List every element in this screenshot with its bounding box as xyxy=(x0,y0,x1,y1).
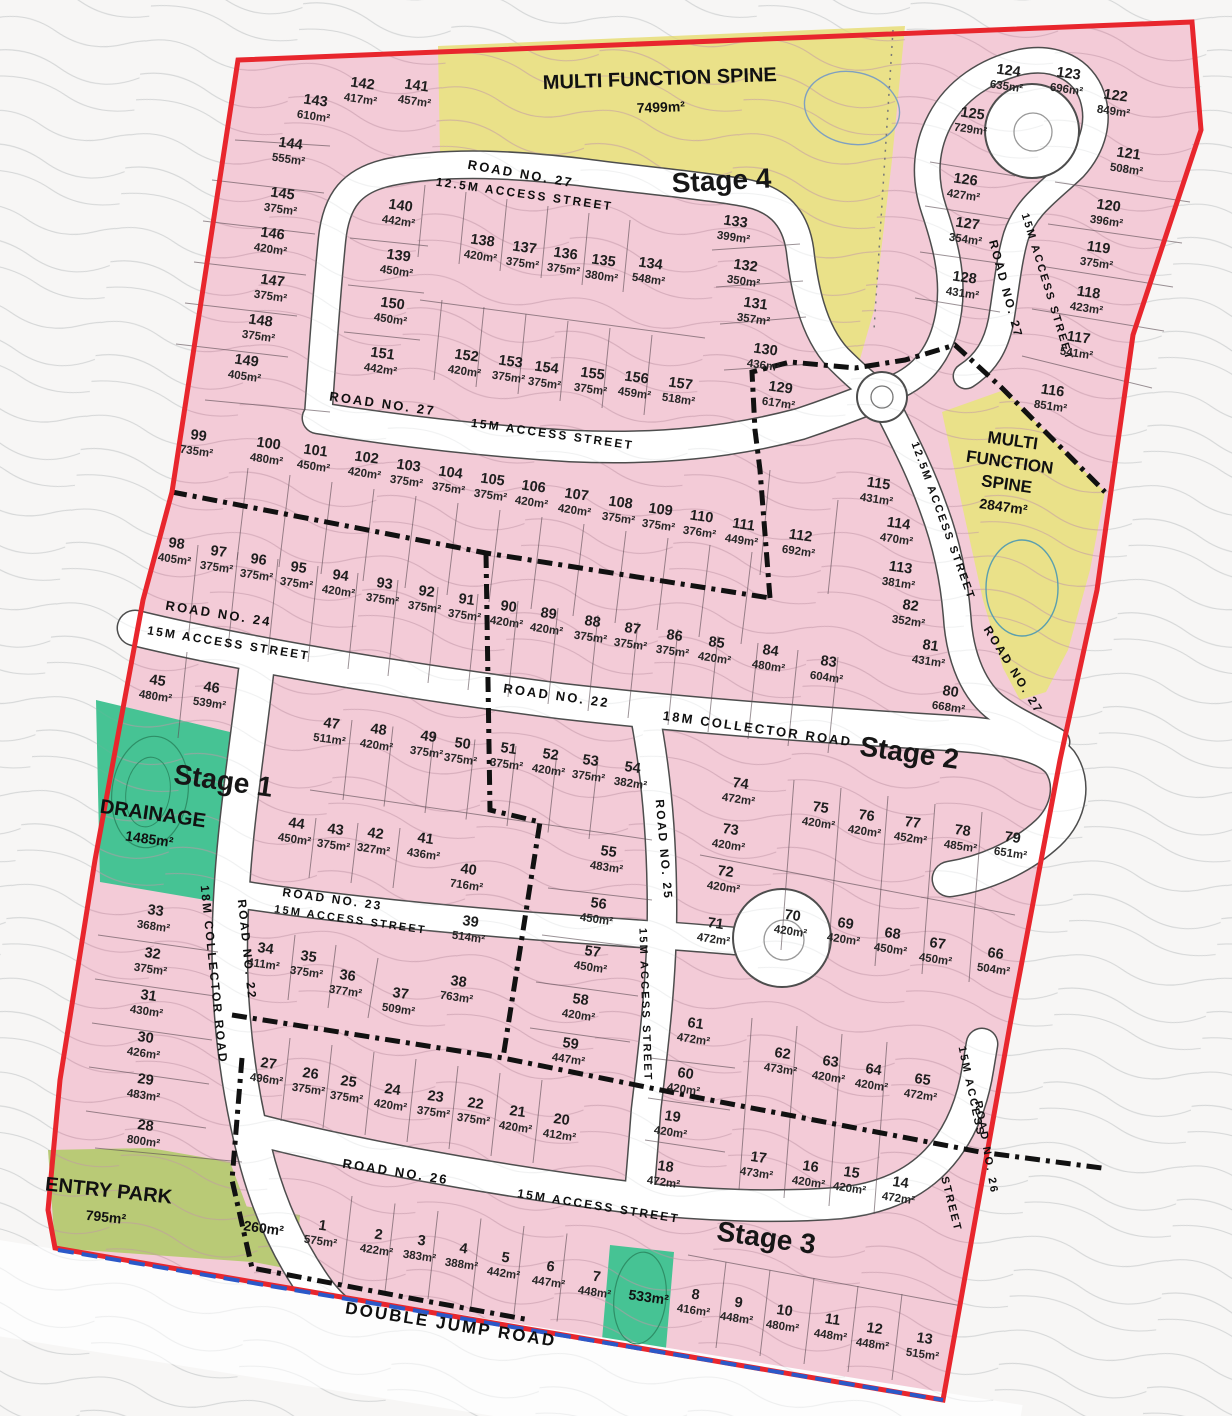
spine-north-area: 7499m² xyxy=(636,98,685,116)
svg-text:77: 77 xyxy=(903,814,921,832)
svg-text:28: 28 xyxy=(136,1117,154,1135)
svg-text:36: 36 xyxy=(338,967,356,985)
svg-text:81: 81 xyxy=(921,637,939,655)
svg-text:19: 19 xyxy=(663,1108,681,1126)
svg-text:101: 101 xyxy=(302,441,328,460)
svg-text:138: 138 xyxy=(469,231,495,250)
svg-text:156: 156 xyxy=(623,368,649,387)
svg-text:12: 12 xyxy=(865,1320,883,1338)
svg-text:153: 153 xyxy=(497,352,523,371)
svg-text:114: 114 xyxy=(886,514,911,533)
svg-text:22: 22 xyxy=(466,1095,484,1113)
svg-text:65: 65 xyxy=(913,1071,931,1089)
svg-text:79: 79 xyxy=(1003,829,1021,847)
svg-text:125: 125 xyxy=(959,104,985,123)
svg-text:109: 109 xyxy=(647,500,673,519)
svg-text:54: 54 xyxy=(623,759,641,777)
svg-text:47: 47 xyxy=(322,715,340,733)
svg-text:75: 75 xyxy=(811,799,829,817)
svg-text:68: 68 xyxy=(883,925,901,943)
svg-text:55: 55 xyxy=(599,843,617,861)
svg-text:31: 31 xyxy=(139,987,157,1005)
svg-text:145: 145 xyxy=(269,184,295,203)
svg-text:93: 93 xyxy=(375,575,393,593)
svg-text:48: 48 xyxy=(369,721,387,739)
svg-text:69: 69 xyxy=(836,915,854,933)
svg-text:110: 110 xyxy=(689,507,714,526)
svg-text:89: 89 xyxy=(539,605,557,623)
svg-text:17: 17 xyxy=(749,1149,767,1167)
svg-text:119: 119 xyxy=(1086,238,1111,257)
svg-text:40: 40 xyxy=(459,861,477,879)
svg-text:25: 25 xyxy=(339,1073,357,1091)
svg-text:106: 106 xyxy=(520,477,546,496)
svg-text:146: 146 xyxy=(259,224,285,243)
svg-text:90: 90 xyxy=(499,598,517,616)
svg-text:154: 154 xyxy=(533,358,559,377)
svg-text:84: 84 xyxy=(761,642,779,660)
svg-text:78: 78 xyxy=(953,822,971,840)
svg-text:26: 26 xyxy=(301,1065,319,1083)
svg-text:133: 133 xyxy=(722,212,748,231)
svg-text:134: 134 xyxy=(637,254,663,273)
svg-text:53: 53 xyxy=(581,752,599,770)
svg-text:27: 27 xyxy=(259,1055,277,1073)
svg-text:59: 59 xyxy=(561,1035,579,1053)
svg-text:147: 147 xyxy=(259,271,285,290)
svg-text:122: 122 xyxy=(1102,86,1128,105)
svg-text:108: 108 xyxy=(607,493,633,512)
svg-text:14: 14 xyxy=(891,1174,909,1192)
svg-text:60: 60 xyxy=(676,1065,694,1083)
svg-text:99: 99 xyxy=(189,427,207,445)
svg-text:16: 16 xyxy=(801,1158,819,1176)
svg-text:137: 137 xyxy=(511,238,537,257)
svg-text:39: 39 xyxy=(461,913,479,931)
svg-text:105: 105 xyxy=(479,470,505,489)
svg-text:72: 72 xyxy=(716,863,734,881)
svg-text:150: 150 xyxy=(379,294,405,313)
svg-text:129: 129 xyxy=(767,378,793,397)
svg-text:136: 136 xyxy=(552,244,578,263)
svg-text:51: 51 xyxy=(499,740,517,758)
svg-text:111: 111 xyxy=(731,516,756,535)
svg-text:49: 49 xyxy=(419,728,437,746)
svg-text:83: 83 xyxy=(819,653,837,671)
svg-text:74: 74 xyxy=(731,775,749,793)
svg-text:130: 130 xyxy=(752,340,778,359)
svg-text:142: 142 xyxy=(349,74,375,93)
svg-text:41: 41 xyxy=(416,830,434,848)
svg-text:135: 135 xyxy=(590,251,616,270)
svg-text:103: 103 xyxy=(395,456,421,475)
svg-text:67: 67 xyxy=(928,935,946,953)
svg-text:56: 56 xyxy=(589,895,607,913)
svg-text:95: 95 xyxy=(289,559,307,577)
svg-text:15: 15 xyxy=(842,1164,860,1182)
subdivision-plan: Stage 1 Stage 2 Stage 3 Stage 4 MULTI FU… xyxy=(0,0,1232,1416)
svg-text:107: 107 xyxy=(563,485,589,504)
svg-text:115: 115 xyxy=(866,474,891,493)
svg-text:139: 139 xyxy=(385,246,411,265)
svg-text:18: 18 xyxy=(656,1158,674,1176)
plan-svg: Stage 1 Stage 2 Stage 3 Stage 4 MULTI FU… xyxy=(0,0,1232,1416)
svg-text:123: 123 xyxy=(1055,64,1081,83)
svg-text:112: 112 xyxy=(788,526,813,545)
svg-text:132: 132 xyxy=(732,256,758,275)
svg-text:98: 98 xyxy=(167,535,185,553)
svg-text:24: 24 xyxy=(383,1081,401,1099)
svg-text:96: 96 xyxy=(249,551,267,569)
svg-text:20: 20 xyxy=(552,1111,570,1129)
svg-text:64: 64 xyxy=(864,1061,882,1079)
svg-text:44: 44 xyxy=(287,815,305,833)
svg-text:118: 118 xyxy=(1076,283,1101,302)
svg-text:58: 58 xyxy=(571,991,589,1009)
svg-text:70: 70 xyxy=(783,907,801,925)
svg-text:35: 35 xyxy=(299,948,317,966)
svg-text:11: 11 xyxy=(824,1311,841,1329)
svg-text:61: 61 xyxy=(686,1015,704,1033)
svg-text:92: 92 xyxy=(417,583,435,601)
svg-text:155: 155 xyxy=(579,364,605,383)
svg-text:71: 71 xyxy=(706,915,724,933)
svg-text:45: 45 xyxy=(148,672,166,690)
svg-text:141: 141 xyxy=(403,76,429,95)
svg-text:82: 82 xyxy=(901,597,919,615)
svg-text:37: 37 xyxy=(391,985,409,1003)
svg-text:63: 63 xyxy=(821,1053,839,1071)
svg-text:85: 85 xyxy=(707,634,725,652)
svg-text:102: 102 xyxy=(353,448,379,467)
svg-text:94: 94 xyxy=(331,567,349,585)
svg-text:23: 23 xyxy=(426,1088,444,1106)
svg-text:148: 148 xyxy=(247,311,273,330)
svg-text:152: 152 xyxy=(453,346,479,365)
svg-text:127: 127 xyxy=(954,214,980,233)
svg-text:86: 86 xyxy=(665,627,683,645)
svg-text:13: 13 xyxy=(915,1330,933,1348)
svg-text:157: 157 xyxy=(667,374,693,393)
svg-text:30: 30 xyxy=(136,1029,154,1047)
svg-text:140: 140 xyxy=(387,196,413,215)
svg-text:80: 80 xyxy=(941,683,959,701)
svg-text:62: 62 xyxy=(773,1045,791,1063)
svg-text:29: 29 xyxy=(136,1071,154,1089)
svg-text:100: 100 xyxy=(255,434,281,453)
svg-text:73: 73 xyxy=(721,821,739,839)
svg-text:124: 124 xyxy=(995,61,1021,80)
svg-text:88: 88 xyxy=(583,613,601,631)
stage-4-label: Stage 4 xyxy=(671,162,773,198)
svg-text:121: 121 xyxy=(1115,144,1141,163)
svg-text:21: 21 xyxy=(508,1103,526,1121)
svg-text:34: 34 xyxy=(256,940,274,958)
svg-text:128: 128 xyxy=(951,268,977,287)
svg-text:126: 126 xyxy=(952,170,978,189)
svg-text:143: 143 xyxy=(302,91,328,110)
svg-text:104: 104 xyxy=(437,463,463,482)
svg-text:144: 144 xyxy=(277,134,303,153)
svg-text:50: 50 xyxy=(453,735,471,753)
svg-text:149: 149 xyxy=(233,351,259,370)
svg-text:76: 76 xyxy=(857,807,875,825)
svg-text:131: 131 xyxy=(742,294,768,313)
svg-text:97: 97 xyxy=(209,543,227,561)
svg-text:33: 33 xyxy=(146,902,164,920)
svg-text:52: 52 xyxy=(541,746,559,764)
svg-text:46: 46 xyxy=(202,679,220,697)
svg-text:116: 116 xyxy=(1040,381,1065,400)
svg-text:151: 151 xyxy=(369,344,395,363)
svg-text:87: 87 xyxy=(623,620,641,638)
svg-text:91: 91 xyxy=(457,591,475,609)
svg-text:42: 42 xyxy=(366,825,384,843)
svg-text:57: 57 xyxy=(583,943,601,961)
svg-text:43: 43 xyxy=(326,821,344,839)
svg-text:117: 117 xyxy=(1066,328,1091,347)
svg-text:38: 38 xyxy=(449,973,467,991)
svg-text:113: 113 xyxy=(888,558,913,577)
svg-text:32: 32 xyxy=(143,945,161,963)
svg-text:120: 120 xyxy=(1095,196,1121,215)
svg-text:66: 66 xyxy=(986,945,1004,963)
svg-text:10: 10 xyxy=(775,1302,793,1320)
